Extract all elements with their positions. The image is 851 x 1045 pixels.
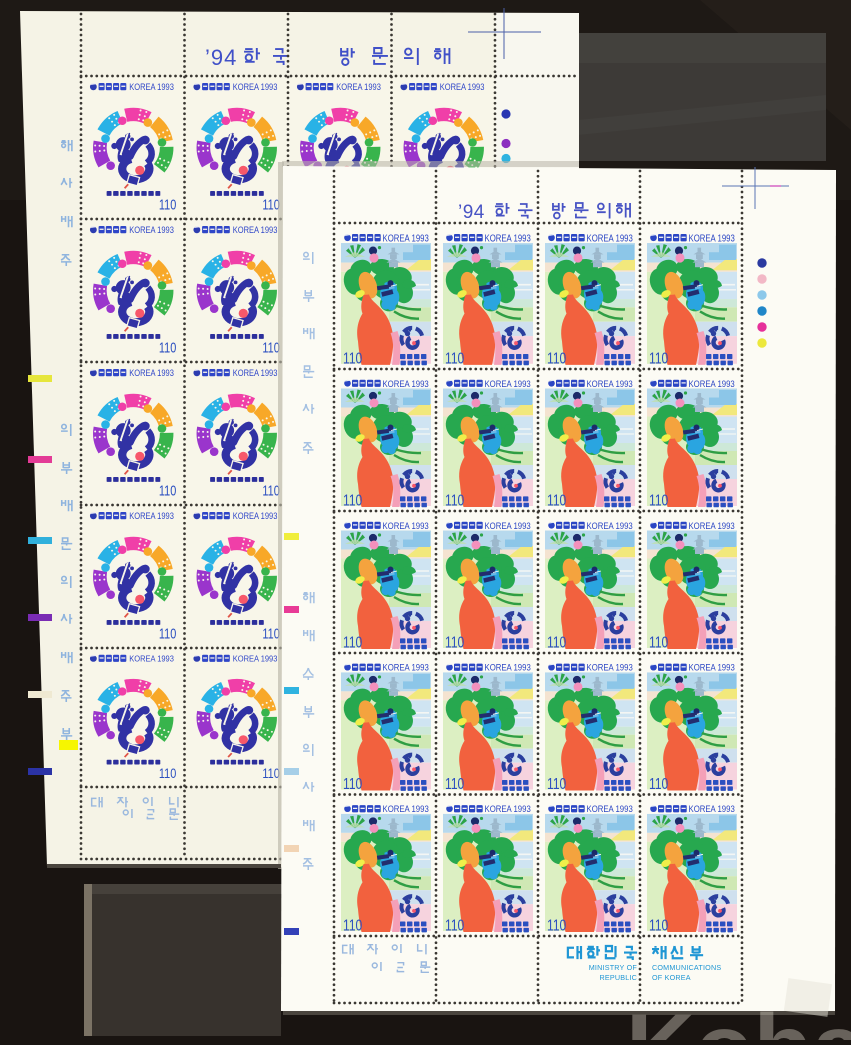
svg-text:COMMUNICATIONS: COMMUNICATIONS [652,963,721,972]
svg-text:’94: ’94 [458,202,485,223]
svg-text:’94: ’94 [205,45,237,70]
svg-text:OF KOREA: OF KOREA [652,973,691,982]
svg-text:MINISTRY OF: MINISTRY OF [589,963,638,972]
svg-text:Kobay: Kobay [626,995,851,1040]
svg-text:REPUBLIC: REPUBLIC [599,973,637,982]
